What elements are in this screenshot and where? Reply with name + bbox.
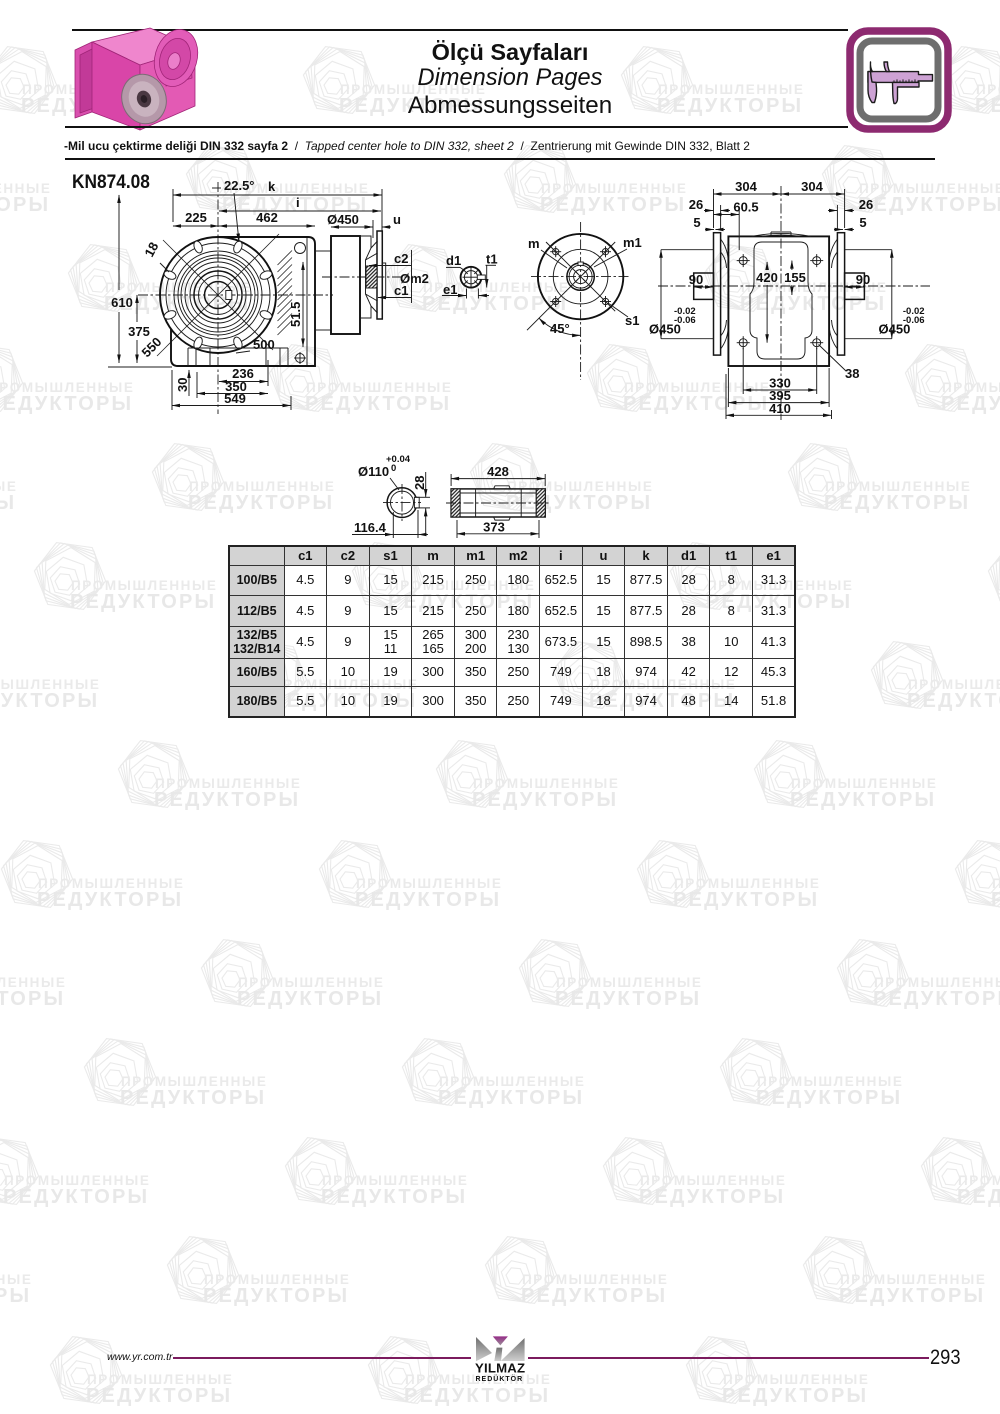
svg-text:304: 304: [801, 179, 823, 194]
svg-text:30: 30: [175, 378, 190, 392]
svg-text:-0.06: -0.06: [903, 315, 925, 326]
svg-text:5: 5: [859, 215, 866, 230]
svg-text:u: u: [393, 212, 401, 227]
svg-text:155: 155: [784, 270, 806, 285]
svg-text:225: 225: [185, 210, 207, 225]
svg-text:90: 90: [689, 272, 703, 287]
svg-text:51.5: 51.5: [288, 302, 303, 327]
svg-text:0: 0: [391, 463, 396, 474]
svg-text:m1: m1: [623, 235, 642, 250]
svg-text:60.5: 60.5: [733, 200, 758, 215]
svg-text:-0.06: -0.06: [674, 315, 696, 326]
svg-text:YILMAZ: YILMAZ: [475, 1360, 525, 1375]
svg-text:Øm2: Øm2: [400, 271, 429, 286]
svg-text:26: 26: [689, 197, 703, 212]
svg-text:462: 462: [256, 210, 278, 225]
svg-text:373: 373: [483, 520, 505, 535]
svg-text:375: 375: [128, 324, 150, 339]
svg-text:549: 549: [224, 391, 246, 406]
svg-text:t1: t1: [486, 252, 498, 267]
svg-text:Ø450: Ø450: [327, 212, 359, 227]
svg-text:c2: c2: [394, 251, 408, 266]
svg-text:5: 5: [693, 215, 700, 230]
svg-text:s1: s1: [625, 313, 639, 328]
svg-text:Ø110: Ø110: [358, 464, 389, 479]
svg-text:m: m: [528, 236, 540, 251]
svg-text:610: 610: [111, 295, 133, 310]
svg-text:28: 28: [412, 476, 427, 490]
svg-text:45°: 45°: [550, 321, 570, 336]
svg-text:REDÜKTÖR: REDÜKTÖR: [476, 1374, 524, 1383]
svg-text:22.5°: 22.5°: [224, 178, 255, 193]
svg-text:18: 18: [141, 240, 161, 260]
svg-text:+0.04: +0.04: [386, 454, 411, 465]
svg-text:420: 420: [756, 270, 778, 285]
svg-text:428: 428: [487, 464, 509, 479]
svg-text:500: 500: [253, 337, 275, 352]
svg-text:116.4: 116.4: [354, 520, 387, 535]
svg-text:410: 410: [769, 401, 791, 416]
svg-text:i: i: [296, 195, 300, 210]
svg-text:d1: d1: [446, 253, 461, 268]
svg-text:304: 304: [735, 179, 757, 194]
svg-text:90: 90: [856, 272, 870, 287]
svg-text:k: k: [268, 179, 276, 194]
svg-text:e1: e1: [443, 282, 457, 297]
svg-text:38: 38: [845, 366, 859, 381]
svg-text:26: 26: [859, 197, 873, 212]
